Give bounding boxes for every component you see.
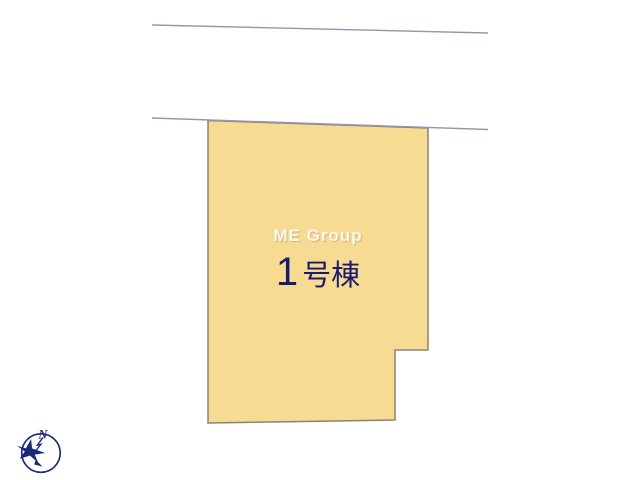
compass-needle-tail [34,460,42,467]
compass-north-icon: N [17,427,67,477]
site-plan-canvas: ME Group 1号棟 N [0,0,640,480]
lot-number-text: 1 [276,250,299,294]
lot-suffix-text: 号棟 [302,260,360,292]
watermark-text: ME Group [208,226,428,246]
lot-label: 1号棟 [208,250,428,295]
road-boundary-line-upper [152,25,488,33]
compass-north-label: N [37,427,48,441]
